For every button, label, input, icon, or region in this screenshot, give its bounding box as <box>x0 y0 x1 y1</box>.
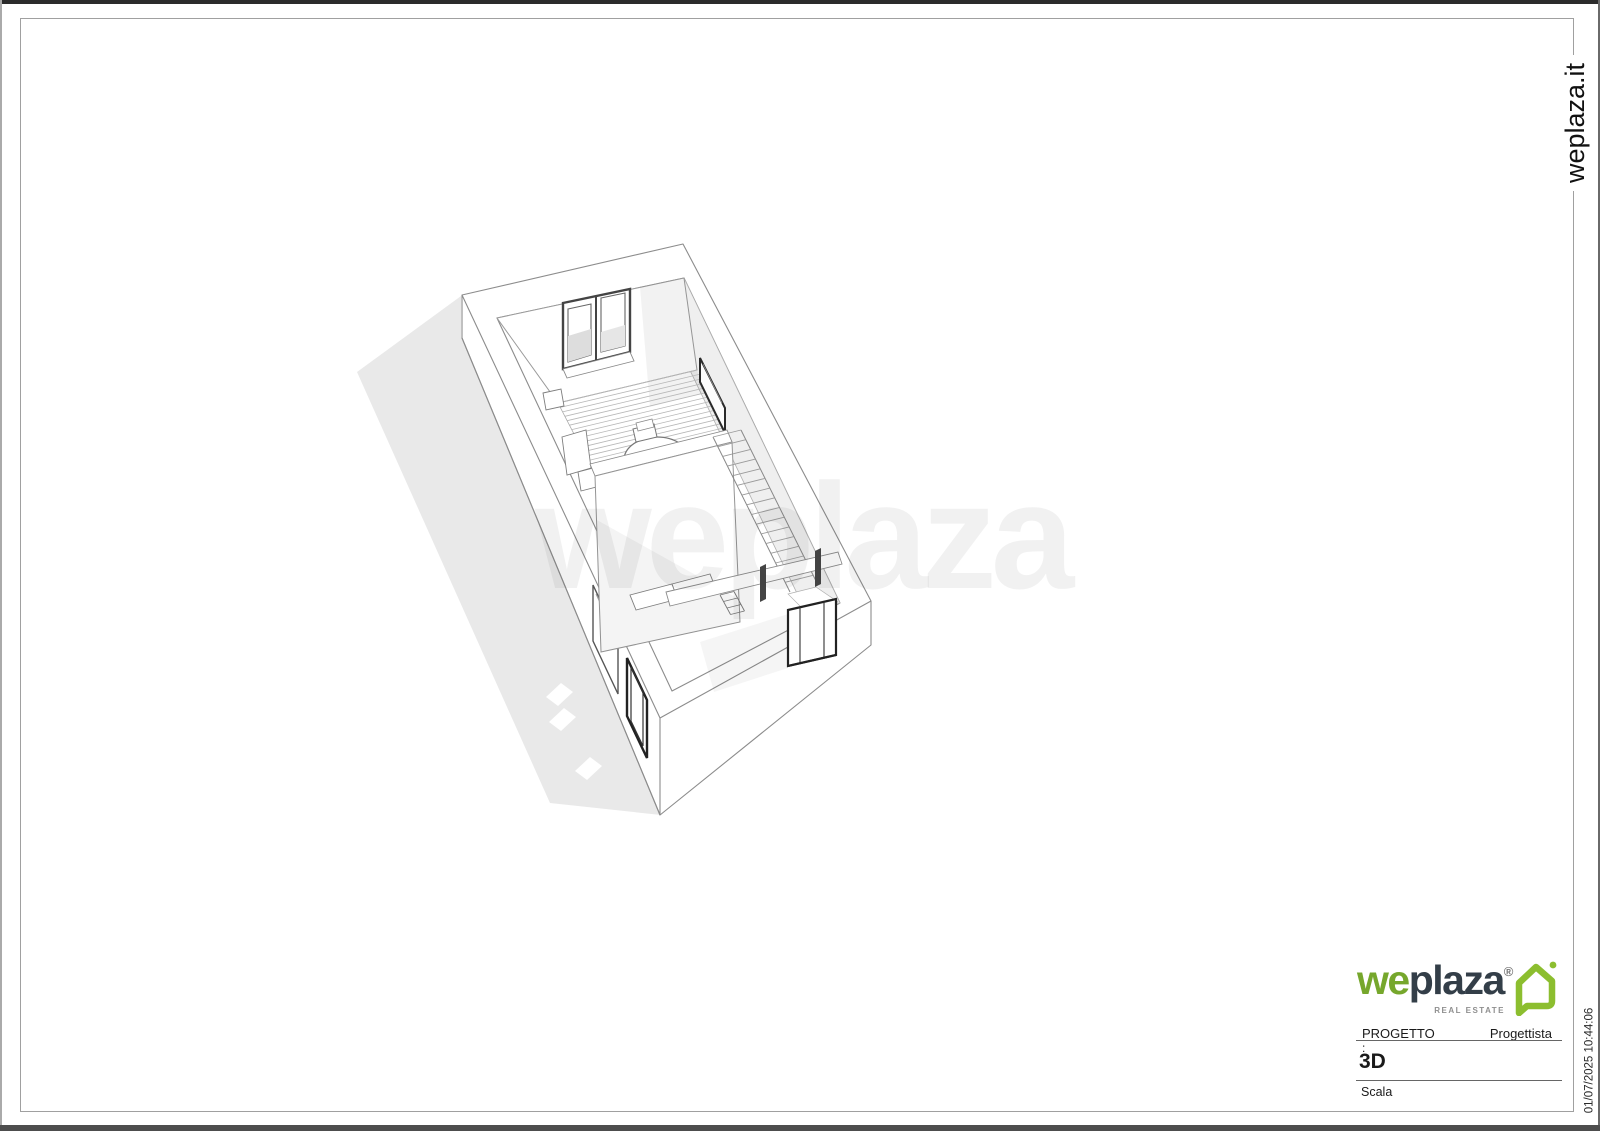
print-timestamp-vertical: 01/07/2025 10:44:06 <box>1582 1000 1597 1122</box>
terrace-bench-2 <box>562 430 591 475</box>
view-title: 3D <box>1359 1050 1386 1074</box>
scale-label: Scala <box>1361 1085 1392 1099</box>
terrace-bench-1 <box>543 389 564 410</box>
door-jamb-1 <box>760 564 766 602</box>
titleblock-divider-2 <box>1356 1080 1562 1081</box>
brand-tagline: REAL ESTATE <box>1385 1006 1505 1015</box>
brand-logo: weplaza® <box>1357 957 1513 1004</box>
brand-logo-we: we <box>1357 957 1409 1003</box>
brand-logo-plaza: plaza <box>1409 957 1504 1003</box>
house-icon <box>1509 958 1559 1016</box>
middle-room <box>590 430 740 652</box>
designer-label: Progettista <box>1460 1026 1552 1041</box>
site-url-vertical: weplaza.it <box>1559 52 1591 194</box>
titleblock-divider-1 <box>1356 1040 1562 1041</box>
door-jamb-2 <box>815 548 821 587</box>
project-label: PROGETTO <box>1362 1026 1435 1041</box>
interior-door <box>788 599 836 666</box>
